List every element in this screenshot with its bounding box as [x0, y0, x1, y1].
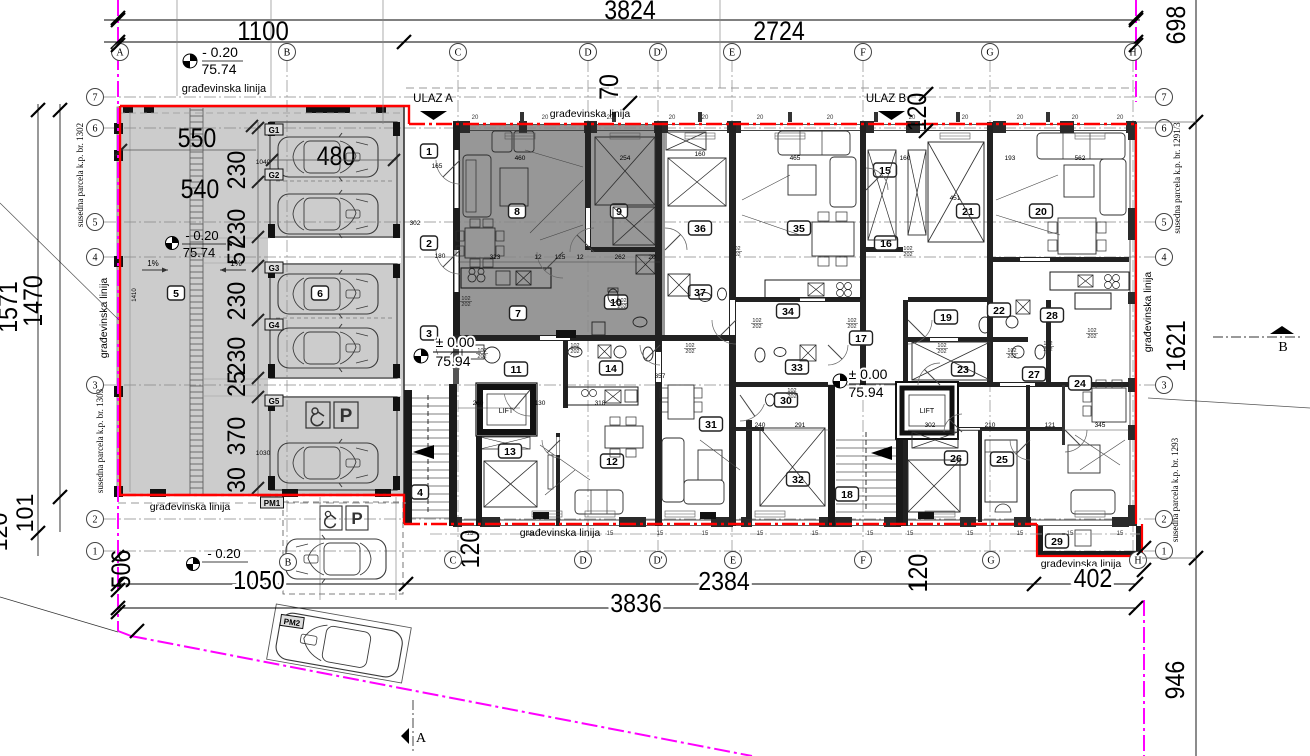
svg-text:202: 202: [1087, 334, 1096, 340]
svg-text:C: C: [450, 556, 457, 567]
svg-text:20: 20: [607, 115, 614, 121]
svg-text:ULAZ B: ULAZ B: [866, 93, 907, 105]
svg-text:75.94: 75.94: [848, 384, 883, 400]
svg-text:240: 240: [755, 422, 766, 429]
svg-text:20: 20: [472, 115, 479, 121]
svg-text:8: 8: [514, 206, 520, 218]
svg-text:6: 6: [317, 288, 323, 300]
svg-text:A: A: [416, 731, 427, 746]
svg-text:12: 12: [576, 254, 584, 261]
svg-text:20: 20: [827, 115, 834, 121]
svg-text:15: 15: [702, 531, 709, 537]
svg-text:7: 7: [1162, 93, 1167, 104]
svg-text:15: 15: [1017, 531, 1024, 537]
svg-text:20: 20: [909, 115, 916, 121]
svg-text:460: 460: [515, 155, 526, 162]
svg-text:12: 12: [534, 254, 542, 261]
svg-text:15: 15: [467, 531, 474, 537]
svg-text:17: 17: [855, 333, 867, 345]
svg-text:101: 101: [12, 494, 39, 533]
svg-text:4: 4: [93, 253, 98, 264]
svg-text:1: 1: [93, 547, 98, 558]
svg-text:1050: 1050: [233, 565, 285, 595]
svg-text:480: 480: [317, 141, 356, 171]
svg-text:B: B: [1278, 340, 1287, 355]
svg-text:120: 120: [902, 93, 932, 132]
svg-text:120: 120: [903, 554, 933, 593]
svg-text:9: 9: [616, 206, 622, 218]
svg-text:260: 260: [473, 400, 484, 407]
svg-text:1100: 1100: [237, 16, 289, 46]
svg-text:550: 550: [178, 123, 217, 153]
svg-text:D': D': [653, 48, 662, 59]
svg-text:202: 202: [937, 349, 946, 355]
svg-text:193: 193: [1005, 155, 1016, 162]
svg-text:5: 5: [93, 218, 98, 229]
svg-text:20: 20: [1072, 115, 1079, 121]
svg-text:125: 125: [555, 254, 566, 261]
svg-text:506: 506: [106, 550, 136, 589]
svg-text:1030: 1030: [256, 450, 271, 457]
svg-text:7: 7: [93, 93, 98, 104]
svg-text:698: 698: [1161, 6, 1191, 45]
svg-text:28: 28: [1046, 310, 1058, 322]
svg-text:D': D': [653, 556, 662, 567]
svg-text:25: 25: [223, 371, 251, 397]
svg-text:13: 13: [504, 446, 516, 458]
svg-text:D: D: [584, 48, 591, 59]
svg-text:15: 15: [527, 531, 534, 537]
svg-text:D: D: [579, 556, 586, 567]
svg-text:121: 121: [1045, 422, 1056, 429]
svg-text:F: F: [860, 556, 866, 567]
svg-text:B: B: [284, 48, 291, 59]
svg-text:20: 20: [757, 115, 764, 121]
svg-text:75.94: 75.94: [435, 353, 470, 369]
svg-text:građevinska linija: građevinska linija: [182, 83, 267, 95]
svg-text:70: 70: [594, 74, 624, 100]
svg-text:120: 120: [0, 513, 13, 552]
svg-text:24: 24: [1074, 378, 1086, 390]
svg-text:3836: 3836: [610, 588, 662, 618]
svg-text:A: A: [116, 48, 124, 59]
svg-text:E: E: [729, 48, 735, 59]
svg-text:2: 2: [1162, 515, 1167, 526]
svg-text:165: 165: [432, 163, 443, 170]
svg-text:202: 202: [787, 394, 796, 400]
svg-text:302: 302: [925, 422, 936, 429]
svg-text:PM1: PM1: [264, 499, 281, 508]
svg-text:20: 20: [962, 115, 969, 121]
svg-text:3: 3: [426, 328, 432, 340]
svg-text:susedna parcela k.p. br. 1291/: susedna parcela k.p. br. 1291/3: [1172, 122, 1182, 234]
svg-text:ULAZ A: ULAZ A: [413, 93, 453, 105]
svg-text:12: 12: [606, 456, 618, 468]
svg-text:180: 180: [435, 253, 446, 260]
svg-text:230: 230: [223, 337, 251, 376]
svg-text:210: 210: [985, 422, 996, 429]
svg-text:građevinska linija: građevinska linija: [98, 278, 110, 359]
svg-text:302: 302: [410, 220, 421, 227]
svg-text:202: 202: [1007, 354, 1016, 360]
svg-text:130: 130: [535, 400, 546, 407]
svg-text:33: 33: [791, 362, 803, 374]
svg-text:B: B: [285, 558, 292, 569]
svg-text:susedna parcela k.p. br. 1302: susedna parcela k.p. br. 1302: [75, 123, 85, 227]
svg-text:P: P: [340, 406, 353, 427]
svg-text:G3: G3: [269, 264, 280, 273]
svg-text:± 0.00: ± 0.00: [849, 366, 888, 382]
svg-text:318: 318: [595, 400, 606, 407]
svg-text:C: C: [455, 48, 462, 59]
svg-text:4: 4: [1162, 253, 1167, 264]
svg-text:2724: 2724: [753, 16, 805, 46]
svg-text:G4: G4: [269, 321, 280, 330]
svg-text:6: 6: [1162, 124, 1167, 135]
svg-text:20: 20: [648, 254, 656, 261]
svg-text:75.74: 75.74: [201, 61, 236, 77]
svg-text:357: 357: [655, 373, 666, 380]
svg-text:75.74: 75.74: [183, 245, 216, 260]
svg-text:11: 11: [510, 364, 521, 376]
svg-text:4: 4: [417, 487, 423, 499]
svg-text:202: 202: [617, 304, 626, 310]
svg-text:21: 21: [962, 206, 974, 218]
svg-text:14: 14: [605, 363, 617, 375]
svg-text:291: 291: [795, 422, 806, 429]
svg-text:160: 160: [695, 151, 706, 158]
svg-text:G: G: [986, 48, 993, 59]
svg-text:5: 5: [173, 288, 179, 300]
svg-text:G5: G5: [269, 397, 280, 406]
svg-text:15: 15: [1117, 531, 1124, 537]
svg-text:1470: 1470: [18, 275, 48, 327]
svg-text:34: 34: [782, 306, 794, 318]
svg-text:18: 18: [841, 489, 853, 501]
svg-text:202: 202: [847, 324, 856, 330]
svg-text:20: 20: [1035, 206, 1047, 218]
svg-text:15: 15: [607, 531, 614, 537]
svg-text:1: 1: [426, 146, 432, 158]
svg-text:32: 32: [792, 474, 804, 486]
svg-text:15: 15: [1067, 531, 1074, 537]
svg-text:402: 402: [1074, 563, 1113, 593]
svg-text:6: 6: [93, 124, 98, 135]
svg-text:20: 20: [702, 115, 709, 121]
svg-text:36: 36: [694, 223, 706, 235]
svg-text:465: 465: [790, 155, 801, 162]
svg-text:5: 5: [1162, 218, 1167, 229]
svg-text:202: 202: [461, 302, 470, 308]
svg-text:susedna parcela k.p. br. 1303: susedna parcela k.p. br. 1303: [95, 388, 105, 493]
svg-text:202: 202: [731, 252, 740, 258]
svg-text:- 0.20: - 0.20: [207, 546, 240, 561]
svg-text:- 0.20: - 0.20: [185, 228, 218, 243]
svg-text:345: 345: [1095, 422, 1106, 429]
svg-text:2384: 2384: [698, 566, 750, 596]
svg-text:1: 1: [1162, 547, 1167, 558]
svg-text:E: E: [730, 556, 736, 567]
svg-text:- 0.20: - 0.20: [202, 44, 238, 60]
svg-text:1%: 1%: [147, 259, 159, 268]
svg-text:2: 2: [93, 515, 98, 526]
svg-text:građevinska linija: građevinska linija: [150, 501, 231, 513]
svg-text:LIFT: LIFT: [920, 408, 935, 415]
svg-text:15: 15: [757, 531, 764, 537]
svg-text:2: 2: [426, 238, 432, 250]
svg-text:202: 202: [903, 252, 912, 258]
svg-text:540: 540: [181, 174, 220, 204]
svg-text:15: 15: [907, 531, 914, 537]
svg-text:građevinska linija: građevinska linija: [550, 108, 631, 120]
svg-text:202: 202: [1043, 347, 1052, 353]
svg-text:262: 262: [615, 254, 626, 261]
svg-text:562: 562: [1075, 155, 1086, 162]
svg-text:G2: G2: [269, 171, 280, 180]
svg-text:23: 23: [957, 364, 969, 376]
svg-text:22: 22: [993, 305, 1005, 317]
svg-text:F: F: [860, 48, 866, 59]
svg-text:20: 20: [1117, 115, 1124, 121]
svg-text:20: 20: [669, 115, 676, 121]
svg-text:± 0.00: ± 0.00: [436, 334, 475, 350]
svg-text:202: 202: [477, 354, 486, 360]
svg-text:27: 27: [1028, 369, 1040, 381]
svg-text:15: 15: [967, 531, 974, 537]
svg-text:15: 15: [812, 531, 819, 537]
svg-text:susedna parcela k.p. br. 1293: susedna parcela k.p. br. 1293: [1170, 437, 1180, 542]
svg-text:202: 202: [570, 349, 579, 355]
svg-text:3: 3: [1162, 381, 1167, 392]
svg-text:254: 254: [620, 155, 631, 162]
svg-text:323: 323: [490, 254, 501, 261]
svg-text:20: 20: [542, 115, 549, 121]
svg-text:230: 230: [223, 282, 251, 321]
svg-text:160: 160: [900, 155, 911, 162]
svg-text:3824: 3824: [604, 0, 656, 25]
svg-text:451: 451: [950, 195, 961, 202]
svg-text:19: 19: [940, 312, 952, 324]
svg-text:P: P: [351, 509, 362, 528]
svg-text:30: 30: [223, 467, 251, 493]
svg-text:202: 202: [685, 349, 694, 355]
svg-text:15: 15: [867, 531, 874, 537]
svg-text:15: 15: [657, 531, 664, 537]
svg-text:230: 230: [223, 151, 251, 190]
svg-text:20: 20: [1017, 115, 1024, 121]
svg-text:202: 202: [752, 324, 761, 330]
svg-text:946: 946: [1160, 661, 1190, 700]
svg-text:građevinska linija: građevinska linija: [1142, 272, 1154, 353]
svg-text:29: 29: [1051, 536, 1063, 548]
svg-text:1410: 1410: [132, 288, 138, 302]
svg-text:57: 57: [223, 239, 251, 265]
svg-text:LIFT: LIFT: [499, 408, 514, 415]
svg-text:1621: 1621: [1161, 320, 1191, 372]
svg-text:G1: G1: [269, 126, 280, 135]
svg-text:H: H: [1134, 556, 1141, 567]
svg-text:25: 25: [996, 454, 1008, 466]
svg-text:370: 370: [223, 417, 251, 456]
svg-text:7: 7: [515, 308, 521, 320]
svg-text:G: G: [987, 556, 994, 567]
svg-text:31: 31: [705, 419, 717, 431]
